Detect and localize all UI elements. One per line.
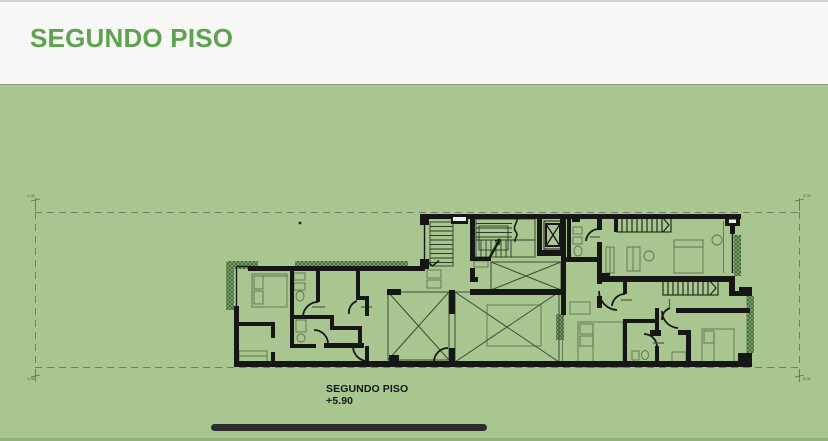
svg-text:1.05: 1.05 bbox=[27, 376, 36, 381]
svg-text:1.05: 1.05 bbox=[27, 193, 36, 198]
svg-text:5.00: 5.00 bbox=[803, 376, 812, 381]
svg-text:5.00: 5.00 bbox=[803, 193, 812, 198]
